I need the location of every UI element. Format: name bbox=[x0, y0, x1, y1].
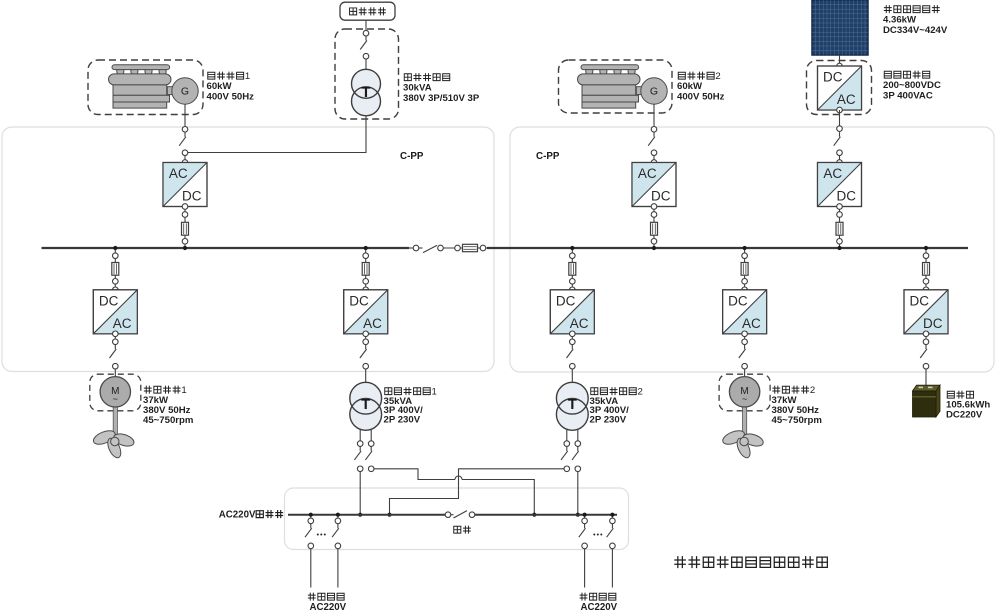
svg-text:AC: AC bbox=[742, 316, 761, 331]
svg-text:DC: DC bbox=[349, 293, 369, 308]
svg-text:2: 2 bbox=[810, 385, 815, 396]
svg-text:DC: DC bbox=[823, 70, 843, 85]
svg-text:~: ~ bbox=[113, 394, 118, 404]
svg-text:AC: AC bbox=[823, 166, 842, 181]
svg-text:400V 50Hz: 400V 50Hz bbox=[677, 91, 725, 102]
svg-text:DC: DC bbox=[837, 189, 857, 204]
svg-text:3P 400VAC: 3P 400VAC bbox=[883, 90, 933, 101]
svg-text:C-PP: C-PP bbox=[536, 151, 560, 162]
svg-text:DC: DC bbox=[556, 293, 576, 308]
svg-text:DC: DC bbox=[182, 189, 202, 204]
svg-text:AC220V: AC220V bbox=[581, 602, 618, 613]
svg-text:DC: DC bbox=[651, 189, 671, 204]
svg-text:G: G bbox=[650, 86, 658, 98]
svg-text:AC: AC bbox=[570, 316, 589, 331]
svg-text:AC220V: AC220V bbox=[219, 509, 256, 520]
svg-text:AC: AC bbox=[837, 92, 856, 107]
svg-text:AC: AC bbox=[638, 166, 657, 181]
svg-text:~: ~ bbox=[742, 394, 747, 404]
svg-text:45~750rpm: 45~750rpm bbox=[772, 415, 822, 426]
svg-text:T: T bbox=[568, 396, 577, 413]
svg-text:DC334V~424V: DC334V~424V bbox=[883, 25, 948, 36]
svg-text:45~750rpm: 45~750rpm bbox=[143, 415, 193, 426]
svg-text:AC: AC bbox=[169, 166, 188, 181]
svg-text:DC: DC bbox=[728, 293, 748, 308]
svg-text:1: 1 bbox=[432, 386, 437, 397]
svg-text:1: 1 bbox=[245, 71, 250, 82]
svg-text:2P 230V: 2P 230V bbox=[384, 415, 421, 426]
svg-text:DC: DC bbox=[910, 293, 930, 308]
svg-text:C-PP: C-PP bbox=[400, 151, 424, 162]
svg-text:DC: DC bbox=[99, 293, 119, 308]
svg-text:2: 2 bbox=[638, 386, 643, 397]
svg-text:DC: DC bbox=[923, 316, 943, 331]
svg-text:T: T bbox=[361, 84, 370, 101]
svg-text:DC220V: DC220V bbox=[946, 410, 983, 421]
svg-text:2: 2 bbox=[715, 71, 720, 82]
svg-text:T: T bbox=[361, 396, 370, 413]
svg-text:AC: AC bbox=[113, 316, 132, 331]
svg-text:400V 50Hz: 400V 50Hz bbox=[207, 91, 255, 102]
svg-text:AC220V: AC220V bbox=[310, 602, 347, 613]
svg-text:380V 3P/510V 3P: 380V 3P/510V 3P bbox=[403, 93, 480, 104]
svg-text:AC: AC bbox=[363, 316, 382, 331]
svg-text:2P 230V: 2P 230V bbox=[590, 415, 627, 426]
svg-text:1: 1 bbox=[181, 385, 186, 396]
svg-text:G: G bbox=[181, 86, 189, 98]
